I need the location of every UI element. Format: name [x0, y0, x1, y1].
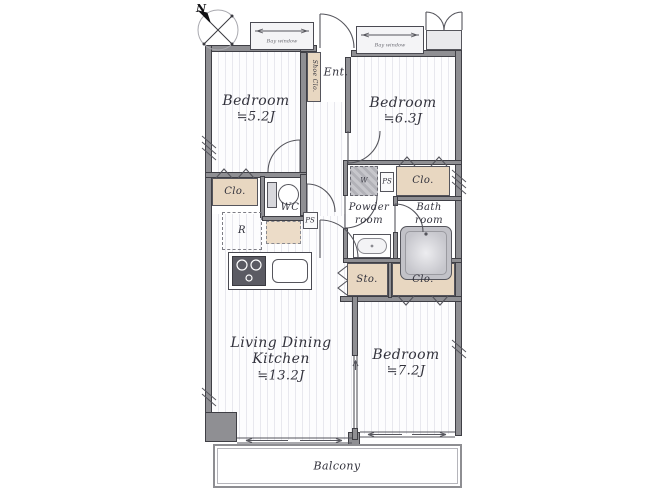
wall-segment	[343, 228, 348, 262]
bath-room-label-line2: room	[415, 216, 443, 226]
closet-nw-label: Clo.	[224, 187, 245, 197]
wall-segment	[343, 160, 348, 196]
entrance-label: Ent.	[324, 67, 349, 78]
pipe-space-powder-label: PS	[382, 179, 392, 186]
ldk-label-line1: Living Dining	[231, 336, 332, 350]
kitchen-cupboard-space	[266, 221, 301, 244]
bay-window-ne-label: Bay window	[375, 44, 406, 49]
washbasin-bowl	[357, 238, 387, 254]
wall-segment	[352, 428, 358, 440]
compass-north-label: N	[195, 2, 207, 15]
bedroom-ne-area: ≒6.3J	[384, 113, 423, 126]
entrance-door-arc	[320, 14, 354, 48]
bedroom-ne-label: Bedroom	[369, 96, 436, 110]
wall-segment	[340, 296, 462, 302]
wc-label: WC	[281, 203, 300, 213]
wall-segment	[393, 196, 398, 206]
meter-box	[426, 30, 462, 50]
bay-window-nw-label: Bay window	[267, 40, 298, 45]
wall-segment	[352, 296, 358, 356]
compass-icon: N	[195, 2, 238, 50]
wall-segment	[393, 196, 462, 201]
meter-box-doors	[426, 12, 462, 30]
closet-ne-label: Clo.	[412, 176, 433, 186]
bath-room-label-line1: Bath	[416, 203, 441, 213]
bedroom-nw-label: Bedroom	[222, 94, 289, 108]
wall-segment	[455, 50, 462, 436]
bedroom-nw-area: ≒5.2J	[237, 111, 276, 124]
wall-segment	[205, 412, 237, 442]
bay-window-ne	[356, 26, 424, 54]
bay-window-nw	[250, 22, 314, 50]
toilet-tank-icon	[267, 182, 277, 208]
bathtub-inner	[405, 231, 447, 275]
closet-se-label: Clo.	[412, 275, 433, 285]
floor-plan: N Bedroom ≒5.2J Bedroom ≒6.3J Living Din…	[0, 0, 667, 500]
bedroom-se-area: ≒7.2J	[387, 365, 426, 378]
wall-segment	[300, 174, 307, 216]
wall-segment	[205, 45, 212, 417]
wall-segment	[393, 232, 398, 260]
balcony-label: Balcony	[313, 461, 360, 472]
pipe-space-hall-label: PS	[305, 218, 315, 225]
wall-segment	[345, 160, 462, 165]
ldk-area: ≒13.2J	[257, 370, 304, 383]
bedroom-se-label: Bedroom	[372, 348, 439, 362]
stove-icon	[232, 256, 266, 286]
storage-center-label: Sto.	[356, 275, 378, 285]
ldk-label-line2: Kitchen	[252, 352, 310, 366]
washer-label: W	[360, 178, 367, 185]
shoe-closet-label: Shoe Clo.	[311, 60, 317, 93]
wall-segment	[300, 52, 307, 174]
powder-room-label-line1: Powder	[349, 203, 389, 213]
kitchen-sink-icon	[272, 259, 308, 283]
refrigerator-label: R	[238, 226, 246, 236]
hall-floor	[307, 102, 343, 216]
powder-room-label-line2: room	[355, 216, 383, 226]
